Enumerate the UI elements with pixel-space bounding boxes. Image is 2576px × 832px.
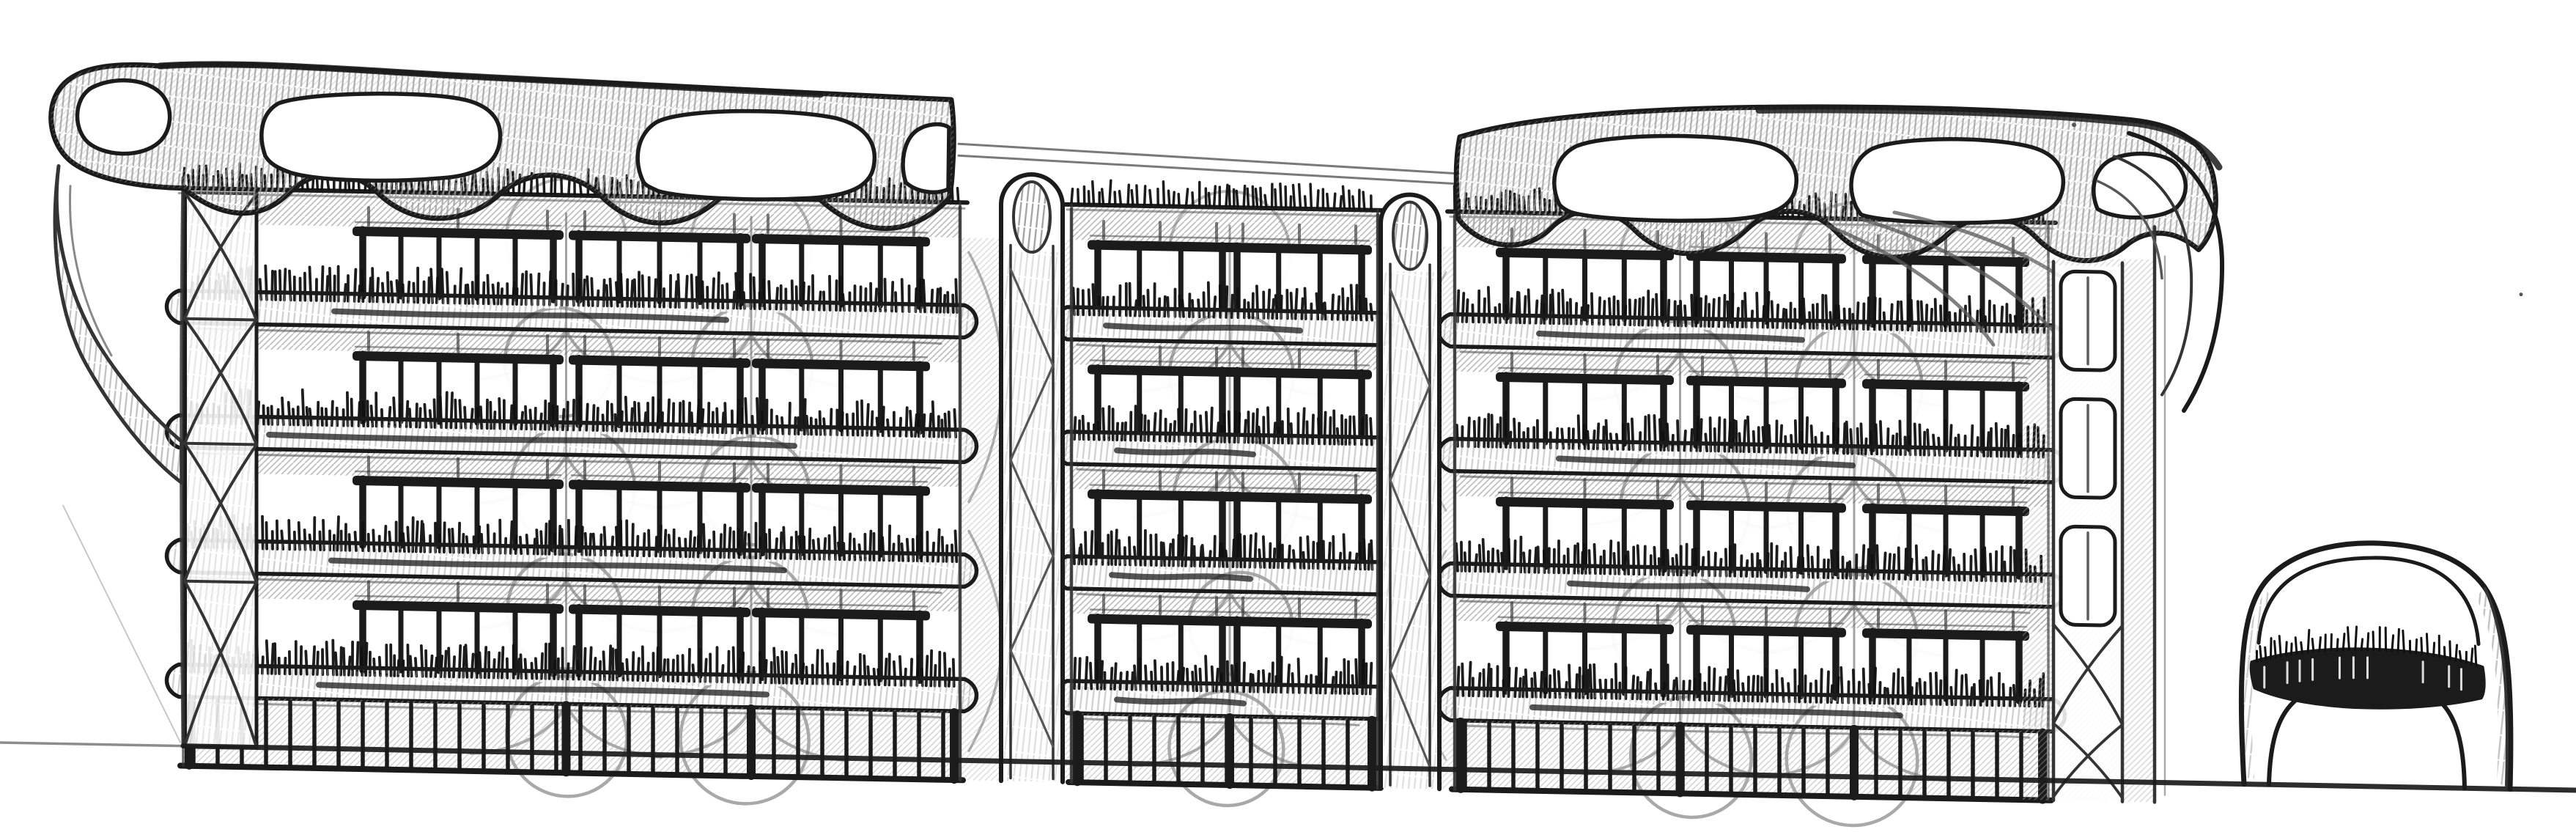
pavilion-grass [2331,634,2332,650]
pavilion-grass [2434,643,2435,656]
tower-cap-oval [1393,202,1427,270]
middle-wing [1055,180,1395,809]
tower-hatch [1004,251,1060,781]
sketch-canvas [0,0,2576,832]
pavilion-grass [2337,639,2338,650]
pavilion-grass [2471,649,2473,665]
pavilion-grass [2279,636,2281,657]
pavilion-grass [2426,634,2427,655]
garden-pavilion [2241,541,2511,789]
pavilion-grass [2348,627,2350,650]
canopy-void [262,92,501,183]
ground-line-faint [0,743,183,746]
pavilion-grass [2475,646,2476,666]
left-lattice-strip [185,187,257,748]
building-elevation-sketch [0,0,2576,832]
right-end-bay [2023,224,2165,803]
ground-floor-hatch [1071,713,1378,788]
left-wing [167,161,977,808]
ground-floor [1069,713,1381,788]
guide-line [63,506,180,743]
pavilion-grass [2416,639,2417,653]
lattice-chord [185,443,257,445]
ground-floor [180,697,963,781]
pavilion-grass [2319,638,2321,652]
pavilion-grass [2308,630,2309,652]
pavilion-grass [2301,642,2303,653]
construction-guides [63,506,180,743]
lattice-hatch [185,193,257,748]
pavilion-grass [2270,638,2271,658]
slab-smudge [1117,450,1253,454]
lattice-chord [185,581,257,583]
ground-floor [1452,721,2051,800]
slab-smudge [1117,699,1244,704]
canopy-void [1851,137,2063,225]
pavilion-grass [2343,634,2344,650]
pavilion-grass [2444,647,2445,658]
slab-smudge [1112,575,1250,579]
pavilion-grass [2403,630,2405,652]
lattice-chord [185,319,257,320]
roof-grass [1071,180,1371,209]
sheared-scene [0,60,2576,832]
pavilion-grass [2260,646,2262,660]
left-melt-drip [55,166,183,746]
pavilion-grass [2421,638,2422,654]
melt-drip [55,166,182,482]
pavilion-grass [2355,627,2357,650]
pavilion-grass [2265,647,2266,659]
pavilion-grass [2373,632,2374,650]
left-outer-edge [182,178,183,746]
pavilion-grass [2286,642,2287,655]
canopy-void [77,79,169,154]
pavilion-grass [2459,651,2461,661]
right-wing [1439,185,2065,829]
tower-cap-oval [1014,182,1050,253]
pavilion-grass [2367,633,2368,650]
lattice-tower-left [1001,174,1063,782]
canopy-void [638,109,874,202]
pavilion-grass [2295,638,2297,654]
pavilion-grass [2392,636,2394,652]
canopy-void [1554,133,1796,223]
pavilion-grass [2292,644,2292,655]
pavilion-grass [2398,629,2399,652]
lattice-tower-right [1381,194,1439,789]
slab-smudge [1106,325,1300,331]
pavilion-grass [2275,641,2276,658]
pavilion-grass [2450,641,2451,659]
pavilion-grass [2312,639,2314,652]
pencil-speck [2520,292,2523,296]
scene-root [0,60,2576,832]
pavilion-grass [2361,639,2362,650]
pavilion-grass [2456,645,2457,660]
